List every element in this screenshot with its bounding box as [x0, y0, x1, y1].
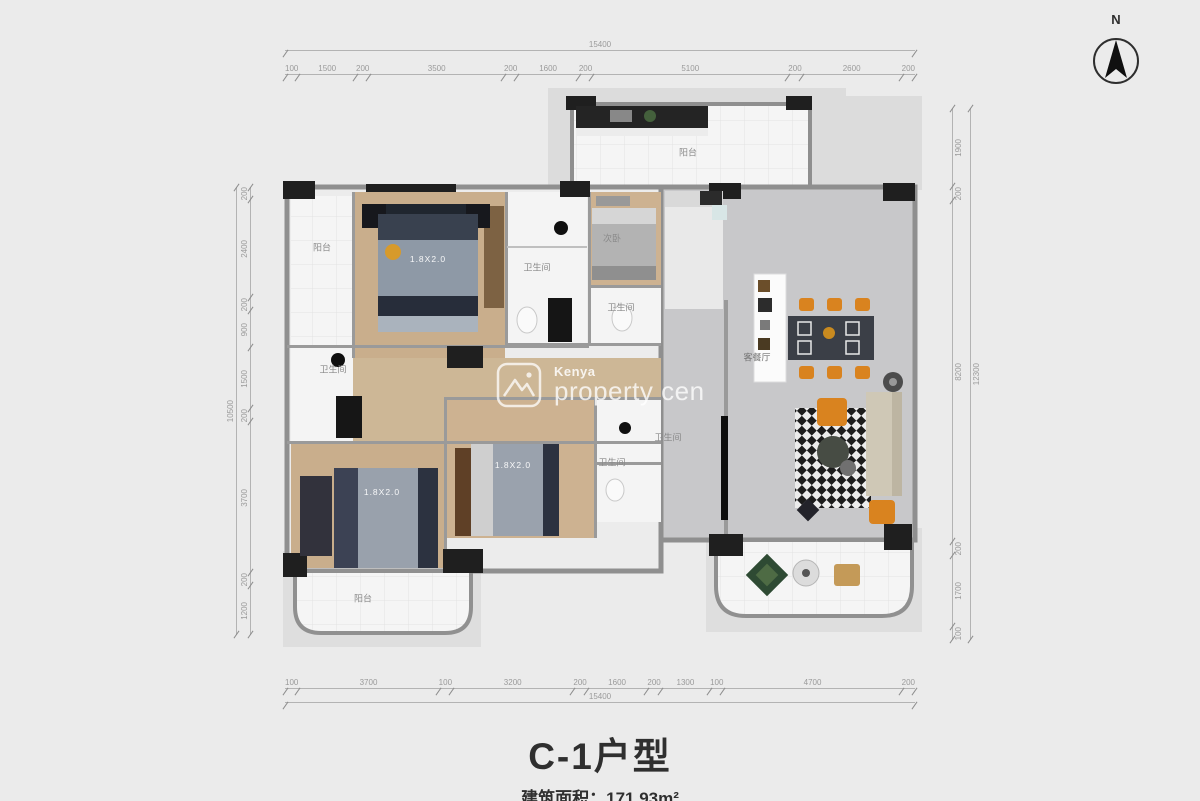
dim-segment: 15400: [285, 36, 915, 50]
dim-segment: 200: [902, 60, 915, 74]
dim-segment: 1500: [236, 348, 250, 409]
dim-segment-label: 200: [954, 187, 963, 200]
dim-segment: 200: [573, 674, 586, 688]
dim-segment-label: 3700: [240, 489, 249, 507]
dim-segment: 200: [579, 60, 592, 74]
dim-segment: 3500: [369, 60, 504, 74]
dim-segment: 100: [439, 674, 452, 688]
dim-segment: 1200: [236, 586, 250, 635]
dim-segment-label: 200: [954, 542, 963, 555]
dim-segment-label: 200: [573, 678, 586, 687]
unit-area: 建筑面积：171.93m²: [0, 784, 1200, 801]
dim-segment: 1500: [298, 60, 356, 74]
dim-segment: 100: [285, 674, 298, 688]
dim-segment: 200: [953, 542, 967, 555]
dim-segment-label: 12300: [972, 363, 981, 385]
dim-segment-label: 3200: [504, 678, 522, 687]
dim-segment-label: 1200: [240, 602, 249, 620]
bedroom4-bed: [455, 444, 559, 536]
dim-segment-label: 15400: [589, 692, 611, 701]
dim-segment-label: 2400: [240, 240, 249, 258]
dim-segment-label: 3500: [428, 64, 446, 73]
dim-segment-label: 200: [902, 678, 915, 687]
dim-segment-label: 8200: [954, 363, 963, 381]
dim-segment: 200: [953, 187, 967, 200]
dim-segment: 1700: [953, 556, 967, 627]
dim-segment: 100: [285, 60, 298, 74]
dim-segment: 100: [710, 674, 723, 688]
dim-top-overall: 15400: [285, 36, 915, 51]
dim-left-overall: 10500: [222, 187, 237, 635]
dim-segment-label: 100: [954, 627, 963, 640]
dim-segment-label: 200: [579, 64, 592, 73]
compass-rose-icon: [1090, 30, 1142, 86]
bedroom2-bed: [592, 196, 656, 280]
dim-segment: 1900: [953, 108, 967, 187]
dim-segment: 3200: [452, 674, 573, 688]
dim-segment: 200: [236, 298, 250, 311]
dim-segment-label: 200: [902, 64, 915, 73]
dim-segment: 4700: [723, 674, 901, 688]
master-bed: [362, 204, 490, 332]
dim-segment-label: 1500: [318, 64, 336, 73]
dim-segment: 1300: [661, 674, 710, 688]
dim-segment-label: 200: [240, 573, 249, 586]
dim-segment-label: 100: [285, 64, 298, 73]
dim-segment: 2400: [236, 200, 250, 298]
dim-segment: 2600: [802, 60, 902, 74]
dim-bottom-segments: 10037001003200200160020013001004700200: [285, 674, 915, 689]
dim-segment-label: 200: [240, 409, 249, 422]
dim-segment: 200: [236, 573, 250, 586]
dim-segment: 200: [647, 674, 660, 688]
dim-segment: 10500: [222, 187, 236, 635]
bedroom3-bed: [300, 468, 438, 568]
dim-right-overall: 12300: [970, 108, 985, 640]
bottom-balcony: [295, 571, 471, 633]
dim-segment-label: 4700: [804, 678, 822, 687]
floorplan-page: Kenya property cen 阳台阳台阳台卫生间卫生间卫生间卫生间卫生间…: [0, 0, 1200, 801]
dim-segment: 100: [953, 627, 967, 640]
dim-segment: 200: [902, 674, 915, 688]
dim-segment: 200: [236, 187, 250, 200]
dim-segment-label: 900: [240, 323, 249, 336]
dim-top-segments: 10015002003500200160020051002002600200: [285, 60, 915, 75]
bath-e-floor: [595, 464, 661, 522]
left-balcony-floor: [291, 196, 353, 346]
dim-segment-label: 200: [504, 64, 517, 73]
dim-segment-label: 100: [285, 678, 298, 687]
dim-segment: 12300: [971, 108, 985, 640]
dim-segment-label: 1600: [608, 678, 626, 687]
dim-segment: 3700: [236, 422, 250, 573]
dim-segment-label: 10500: [226, 400, 235, 422]
dim-right-segments: 190020082002001700100: [952, 108, 967, 640]
dim-segment: 200: [236, 409, 250, 422]
dim-segment: 200: [356, 60, 369, 74]
dim-segment-label: 200: [647, 678, 660, 687]
dim-segment-label: 5100: [681, 64, 699, 73]
dim-left-segments: 2002400200900150020037002001200: [236, 187, 251, 635]
dim-segment: 200: [504, 60, 517, 74]
dim-segment-label: 1500: [240, 370, 249, 388]
dim-segment-label: 3700: [360, 678, 378, 687]
dim-segment-label: 1300: [677, 678, 695, 687]
dim-segment-label: 200: [240, 187, 249, 200]
dim-segment-label: 1900: [954, 139, 963, 157]
dim-segment-label: 100: [439, 678, 452, 687]
dim-segment-label: 100: [710, 678, 723, 687]
dim-segment: 15400: [285, 688, 915, 702]
dim-segment: 8200: [953, 201, 967, 543]
dim-segment: 1600: [587, 674, 648, 688]
dim-bottom-overall: 15400: [285, 688, 915, 703]
dim-segment: 900: [236, 311, 250, 348]
dim-segment-label: 1600: [539, 64, 557, 73]
dim-segment-label: 200: [356, 64, 369, 73]
dim-segment-label: 1700: [954, 582, 963, 600]
compass: N: [1090, 10, 1142, 91]
dim-segment: 1600: [517, 60, 579, 74]
dim-segment: 3700: [298, 674, 438, 688]
dim-segment-label: 15400: [589, 40, 611, 49]
dim-segment: 5100: [592, 60, 788, 74]
dim-segment-label: 200: [240, 298, 249, 311]
dim-segment-label: 2600: [843, 64, 861, 73]
compass-n-label: N: [1090, 10, 1142, 30]
unit-title: C-1户型: [0, 726, 1200, 780]
dim-segment-label: 200: [788, 64, 801, 73]
dim-segment: 200: [788, 60, 801, 74]
title-block: C-1户型 建筑面积：171.93m²: [0, 726, 1200, 801]
